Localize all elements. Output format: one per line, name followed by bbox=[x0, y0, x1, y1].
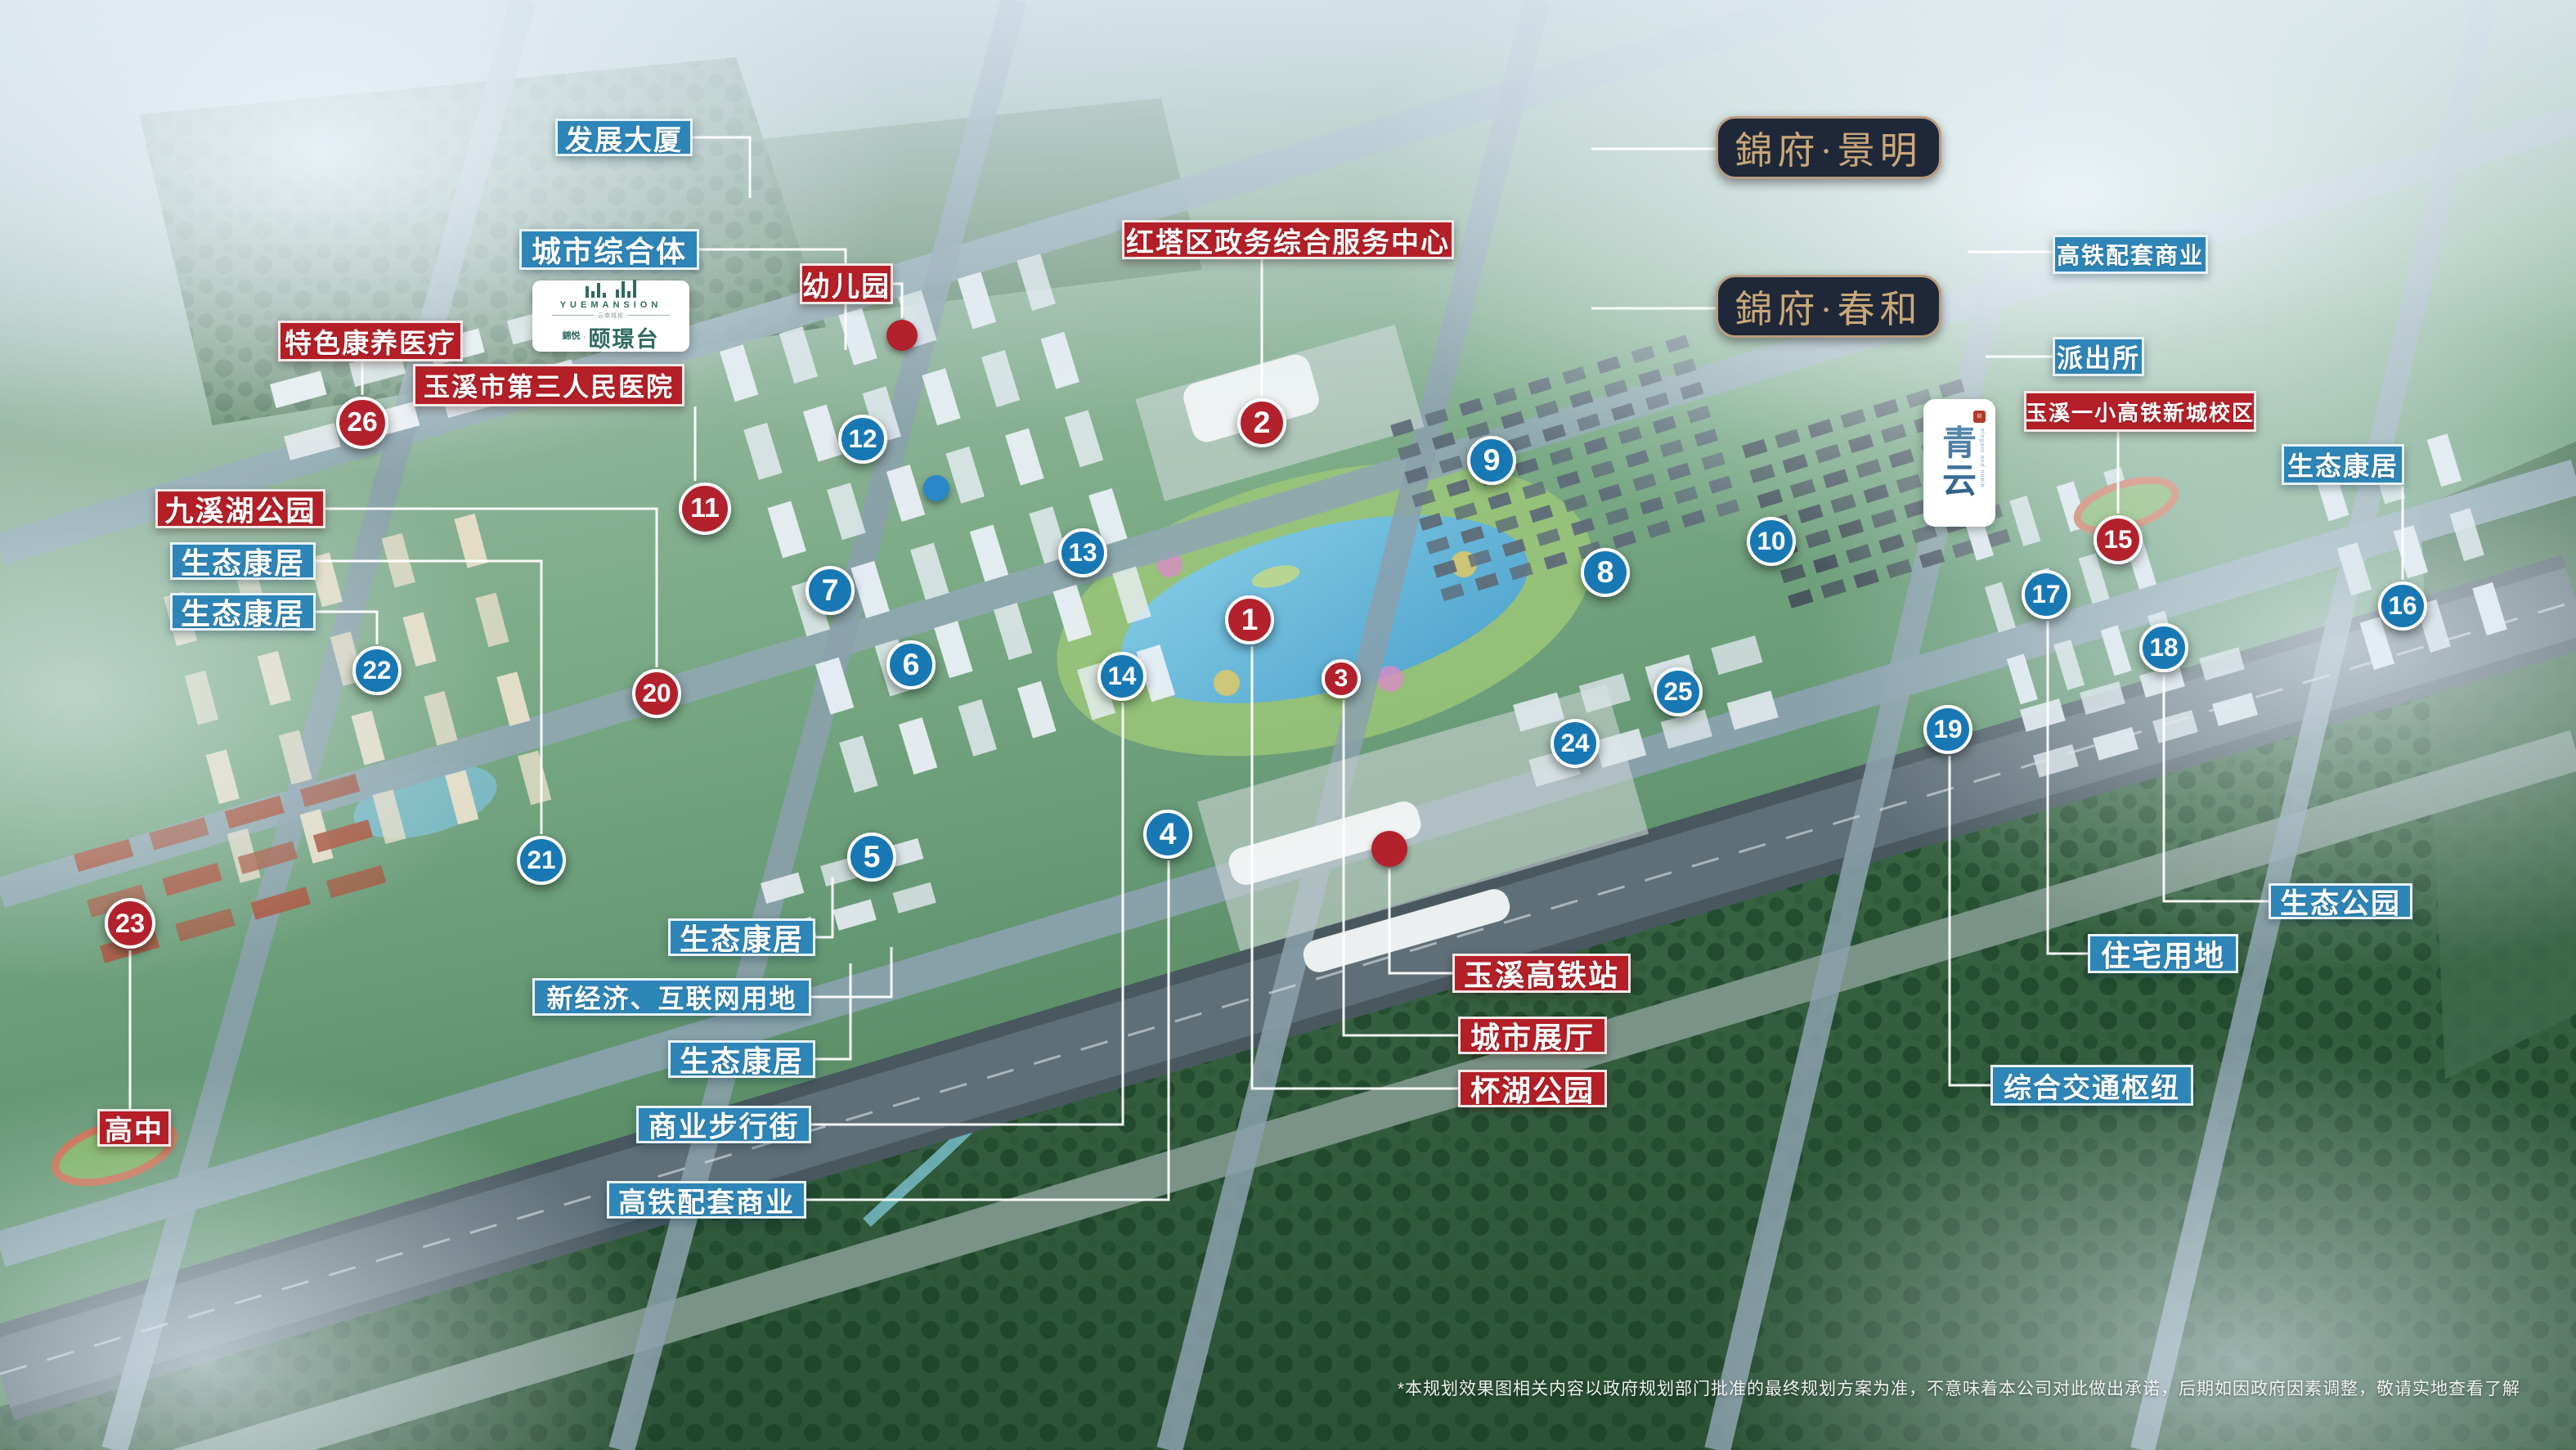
yuemansion-brand-en: YUEMANSION bbox=[560, 300, 662, 310]
marker-18: 18 bbox=[2139, 623, 2188, 672]
marker-23: 23 bbox=[105, 898, 155, 949]
marker-17: 17 bbox=[2022, 570, 2071, 619]
marker-19: 19 bbox=[1923, 705, 1972, 754]
yuemansion-sub-text: 云南城投 bbox=[598, 312, 624, 320]
yuemansion-logo-card: YUEMANSION 云南城投 錦悦 · 颐璟台 bbox=[532, 281, 689, 352]
qingyun-brand-characters: 青 云 bbox=[1942, 425, 1977, 501]
marker-26: 26 bbox=[336, 397, 388, 449]
marker-12: 12 bbox=[838, 415, 887, 464]
qingyun-seal-stamp-icon: 印 bbox=[1973, 411, 1986, 423]
marker-13: 13 bbox=[1058, 528, 1107, 577]
kindergarten-dot bbox=[886, 320, 918, 351]
marker-11: 11 bbox=[679, 483, 731, 535]
marker-10: 10 bbox=[1747, 517, 1796, 566]
masterplan-aerial-map: 发展大厦城市综合体幼儿园红塔区政务综合服务中心錦府·景明錦府·春和高铁配套商业派… bbox=[0, 0, 2576, 1450]
marker-5: 5 bbox=[847, 833, 896, 882]
marker-2: 2 bbox=[1237, 398, 1286, 447]
marker-4: 4 bbox=[1143, 810, 1192, 859]
yuemansion-brand-cn-small: 錦悦 bbox=[563, 332, 581, 342]
yuemansion-building-bars-icon bbox=[586, 280, 636, 298]
marker-16: 16 bbox=[2378, 581, 2427, 631]
marker-22: 22 bbox=[352, 646, 402, 695]
marker-8: 8 bbox=[1581, 548, 1630, 597]
marker-21: 21 bbox=[517, 836, 566, 885]
marker-15: 15 bbox=[2094, 515, 2143, 564]
marker-14: 14 bbox=[1097, 652, 1147, 701]
qingyun-logo-card: 青 云 印 elegant and noble bbox=[1923, 399, 1995, 527]
marker-7: 7 bbox=[806, 566, 855, 615]
station-dot bbox=[1371, 831, 1407, 867]
marker-25: 25 bbox=[1654, 667, 1703, 716]
markers-layer: 1234567891011121314151617181920212223242… bbox=[0, 0, 2576, 1450]
marker-3: 3 bbox=[1322, 659, 1361, 698]
marker-9: 9 bbox=[1467, 436, 1516, 485]
marker-6: 6 bbox=[886, 640, 936, 689]
marker-24: 24 bbox=[1551, 719, 1600, 768]
qingyun-side-text: elegant and noble bbox=[1979, 429, 1985, 488]
marker-1: 1 bbox=[1225, 595, 1274, 644]
yuemansion-brand-cn-large: 颐璟台 bbox=[589, 321, 660, 353]
poi-dot-blue bbox=[923, 475, 949, 501]
disclaimer-text: *本规划效果图相关内容以政府规划部门批准的最终规划方案为准，不意味着本公司对此做… bbox=[1398, 1376, 2520, 1400]
marker-20: 20 bbox=[632, 669, 681, 718]
